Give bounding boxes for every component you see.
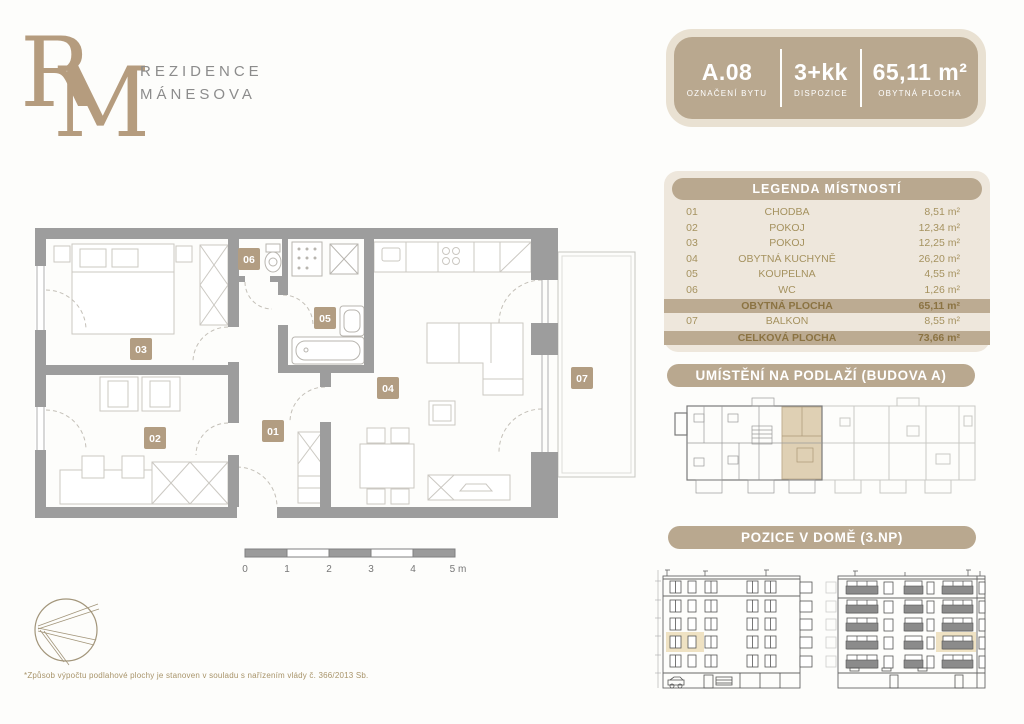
room-label-05: 05 [314,307,336,329]
legend-row-name: POKOJ [720,236,854,252]
unit-info-card-inner: A.08 OZNAČENÍ BYTU 3+kk DISPOZICE 65,11 … [674,37,978,119]
svg-text:05: 05 [319,313,331,325]
front-ground-floor [668,673,780,688]
apartment-floor-plan: 01 02 03 04 05 06 [30,222,640,522]
scale-tick: 3 [368,564,374,575]
legend-row: 03 POKOJ 12,25 m² [664,236,990,252]
legend-row-area: 73,66 m² [854,331,990,345]
faded-building-half [822,398,975,493]
room-label-07: 07 [571,367,593,389]
rear-windows [846,581,985,668]
legend-title: LEGENDA MÍSTNOSTÍ [672,178,982,200]
scale-tick: 5 m [450,564,467,575]
room-label-04: 04 [377,377,399,399]
legend-row-area: 26,20 m² [854,252,990,268]
legend-row-num: 07 [664,314,720,330]
roof-vents [853,570,980,576]
balcony-outline [558,252,635,477]
scale-bar: 0 1 2 3 4 5 m [240,544,470,578]
legend-row-num: 03 [664,236,720,252]
unit-area-label: OBYTNÁ PLOCHA [878,89,962,98]
legend-row-num: 05 [664,267,720,283]
dimension-line [655,570,661,688]
section-title-house-position: POZICE V DOMĚ (3.NP) [668,526,976,549]
brochure-page: R M REZIDENCE MÁNESOVA A.08 OZNAČENÍ BYT… [0,0,1024,724]
unit-area-block: 65,11 m² OBYTNÁ PLOCHA [862,37,978,119]
legend-summary-row: OBYTNÁ PLOCHA 65,11 m² [664,299,990,313]
unit-layout-value: 3+kk [794,59,848,86]
legend-row-num [664,331,720,345]
legend-row-area: 8,51 m² [854,205,990,221]
legend-row-num [664,299,720,313]
legend-row: 05 KOUPELNA 4,55 m² [664,267,990,283]
room-label-01: 01 [262,420,284,442]
legend-row-area: 1,26 m² [854,283,990,299]
legend-row-name: CHODBA [720,205,854,221]
section-title-floor-location: UMÍSTĚNÍ NA PODLAŽÍ (BUDOVA A) [667,364,975,387]
svg-text:02: 02 [149,433,161,445]
unit-layout-block: 3+kk DISPOZICE [782,37,860,119]
unit-id-label: OZNAČENÍ BYTU [687,89,768,98]
brand-name-line1: REZIDENCE [140,60,263,83]
legend-row-name: OBYTNÁ PLOCHA [720,299,854,313]
legend-summary-row: CELKOVÁ PLOCHA 73,66 m² [664,331,990,345]
legend-row-num: 02 [664,221,720,237]
footnote: *Způsob výpočtu podlahové plochy je stan… [24,671,368,680]
legend-row-name: WC [720,283,854,299]
unit-layout-label: DISPOZICE [794,89,848,98]
svg-text:04: 04 [382,383,394,395]
legend-rows: 01 CHODBA 8,51 m² 02 POKOJ 12,34 m² 03 P… [664,205,990,345]
room-label-06: 06 [238,248,260,270]
legend-row-name: BALKON [720,314,854,330]
scale-tick: 2 [326,564,332,575]
legend-row: 01 CHODBA 8,51 m² [664,205,990,221]
svg-text:01: 01 [267,426,279,438]
rear-ground-floor [850,668,963,688]
scale-tick: 4 [410,564,416,575]
room-label-03: 03 [130,338,152,360]
elevation-front [655,570,812,688]
svg-text:06: 06 [243,254,255,266]
brand-name-line2: MÁNESOVA [140,83,263,106]
legend-row: 04 OBYTNÁ KUCHYNĚ 26,20 m² [664,252,990,268]
unit-id-value: A.08 [702,59,753,86]
elevation-rear [826,570,985,688]
legend-row-num: 06 [664,283,720,299]
roof-vents [665,570,769,576]
legend-row-area: 12,34 m² [854,221,990,237]
toilet-tank [266,244,280,252]
brand-monogram-logo: R M [20,14,145,146]
brand-name: REZIDENCE MÁNESOVA [140,60,263,106]
legend-row-name: KOUPELNA [720,267,854,283]
north-arrow-icon [26,592,110,676]
legend-row-area: 4,55 m² [854,267,990,283]
legend-row-name: CELKOVÁ PLOCHA [720,331,854,345]
room-legend-panel: LEGENDA MÍSTNOSTÍ 01 CHODBA 8,51 m² 02 P… [664,171,990,352]
legend-row-num: 01 [664,205,720,221]
legend-row-area: 8,55 m² [854,314,990,330]
front-windows [670,581,812,667]
svg-text:07: 07 [576,373,588,385]
scale-tick: 0 [242,564,248,575]
legend-row-area: 65,11 m² [854,299,990,313]
legend-row-num: 04 [664,252,720,268]
legend-row-area: 12,25 m² [854,236,990,252]
legend-row-name: OBYTNÁ KUCHYNĚ [720,252,854,268]
unit-area-value: 65,11 m² [873,59,968,86]
svg-text:03: 03 [135,344,147,356]
legend-row-name: POKOJ [720,221,854,237]
faded-side-balconies [826,582,836,667]
legend-row: 02 POKOJ 12,34 m² [664,221,990,237]
legend-row: 06 WC 1,26 m² [664,283,990,299]
room-label-02: 02 [144,427,166,449]
floor-location-plan [664,396,1014,504]
unit-id-block: A.08 OZNAČENÍ BYTU [674,37,780,119]
unit-info-card: A.08 OZNAČENÍ BYTU 3+kk DISPOZICE 65,11 … [666,29,986,127]
scale-tick: 1 [284,564,290,575]
building-elevations [650,558,1022,710]
monogram-letter-m: M [53,47,145,146]
legend-row: 07 BALKON 8,55 m² [664,314,990,330]
